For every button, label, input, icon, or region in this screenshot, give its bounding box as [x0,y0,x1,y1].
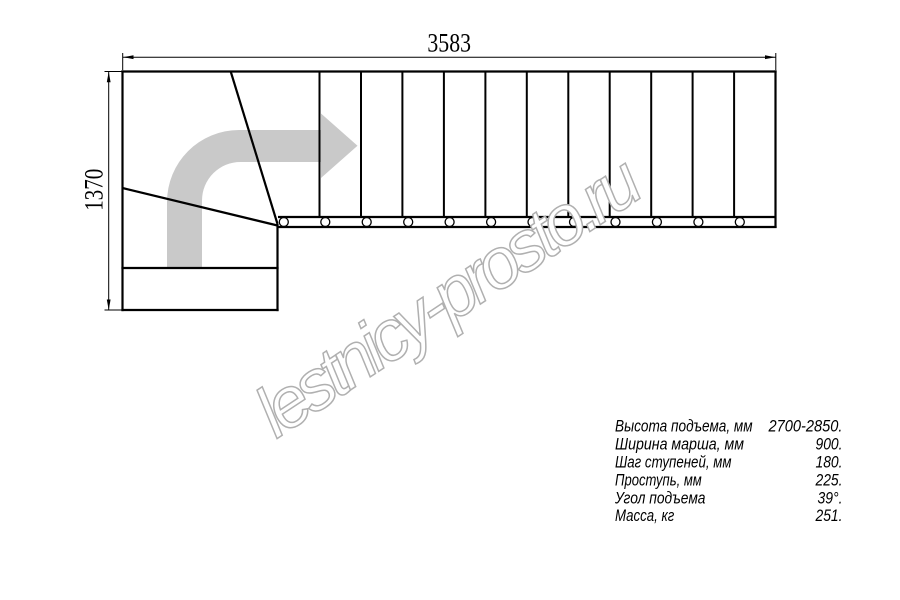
svg-text:2700-2850.: 2700-2850. [768,417,843,436]
svg-text:900.: 900. [816,435,843,454]
svg-text:1370: 1370 [79,169,109,211]
svg-text:Ширина марша, мм: Ширина марша, мм [615,435,744,454]
svg-text:39°.: 39°. [818,488,843,507]
svg-text:251.: 251. [815,506,843,525]
svg-text:Высота подъема, мм: Высота подъема, мм [615,417,753,436]
svg-text:Проступь, мм: Проступь, мм [615,470,702,489]
svg-text:3583: 3583 [427,27,471,57]
svg-text:Угол подъема: Угол подъема [614,488,705,507]
svg-text:lestnicy-prosto.ru: lestnicy-prosto.ru [241,141,656,452]
svg-text:Масса, кг: Масса, кг [615,506,674,525]
svg-text:Шаг ступеней, мм: Шаг ступеней, мм [615,453,732,472]
svg-text:180.: 180. [816,453,843,472]
svg-text:225.: 225. [815,470,843,489]
